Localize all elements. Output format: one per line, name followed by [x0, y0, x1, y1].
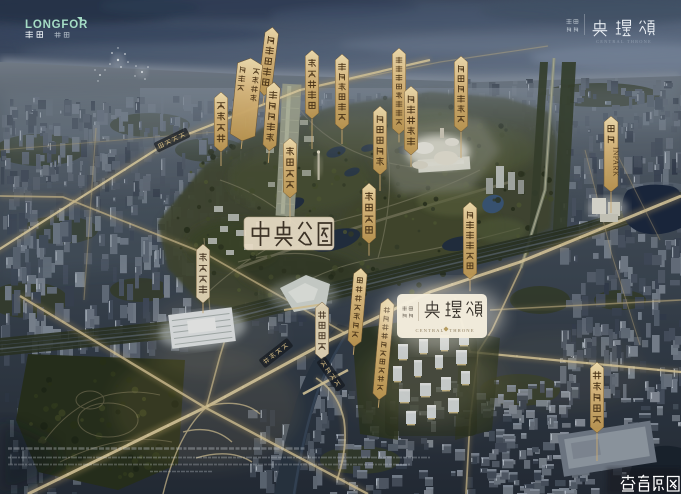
svg-text:INPARK: INPARK	[612, 147, 621, 177]
svg-text:THRONE: THRONE	[449, 328, 474, 333]
svg-text:CENTRAL THRONE: CENTRAL THRONE	[596, 39, 652, 44]
svg-text:CENTRAL: CENTRAL	[416, 328, 445, 333]
svg-text:LONGFOR: LONGFOR	[25, 19, 88, 31]
